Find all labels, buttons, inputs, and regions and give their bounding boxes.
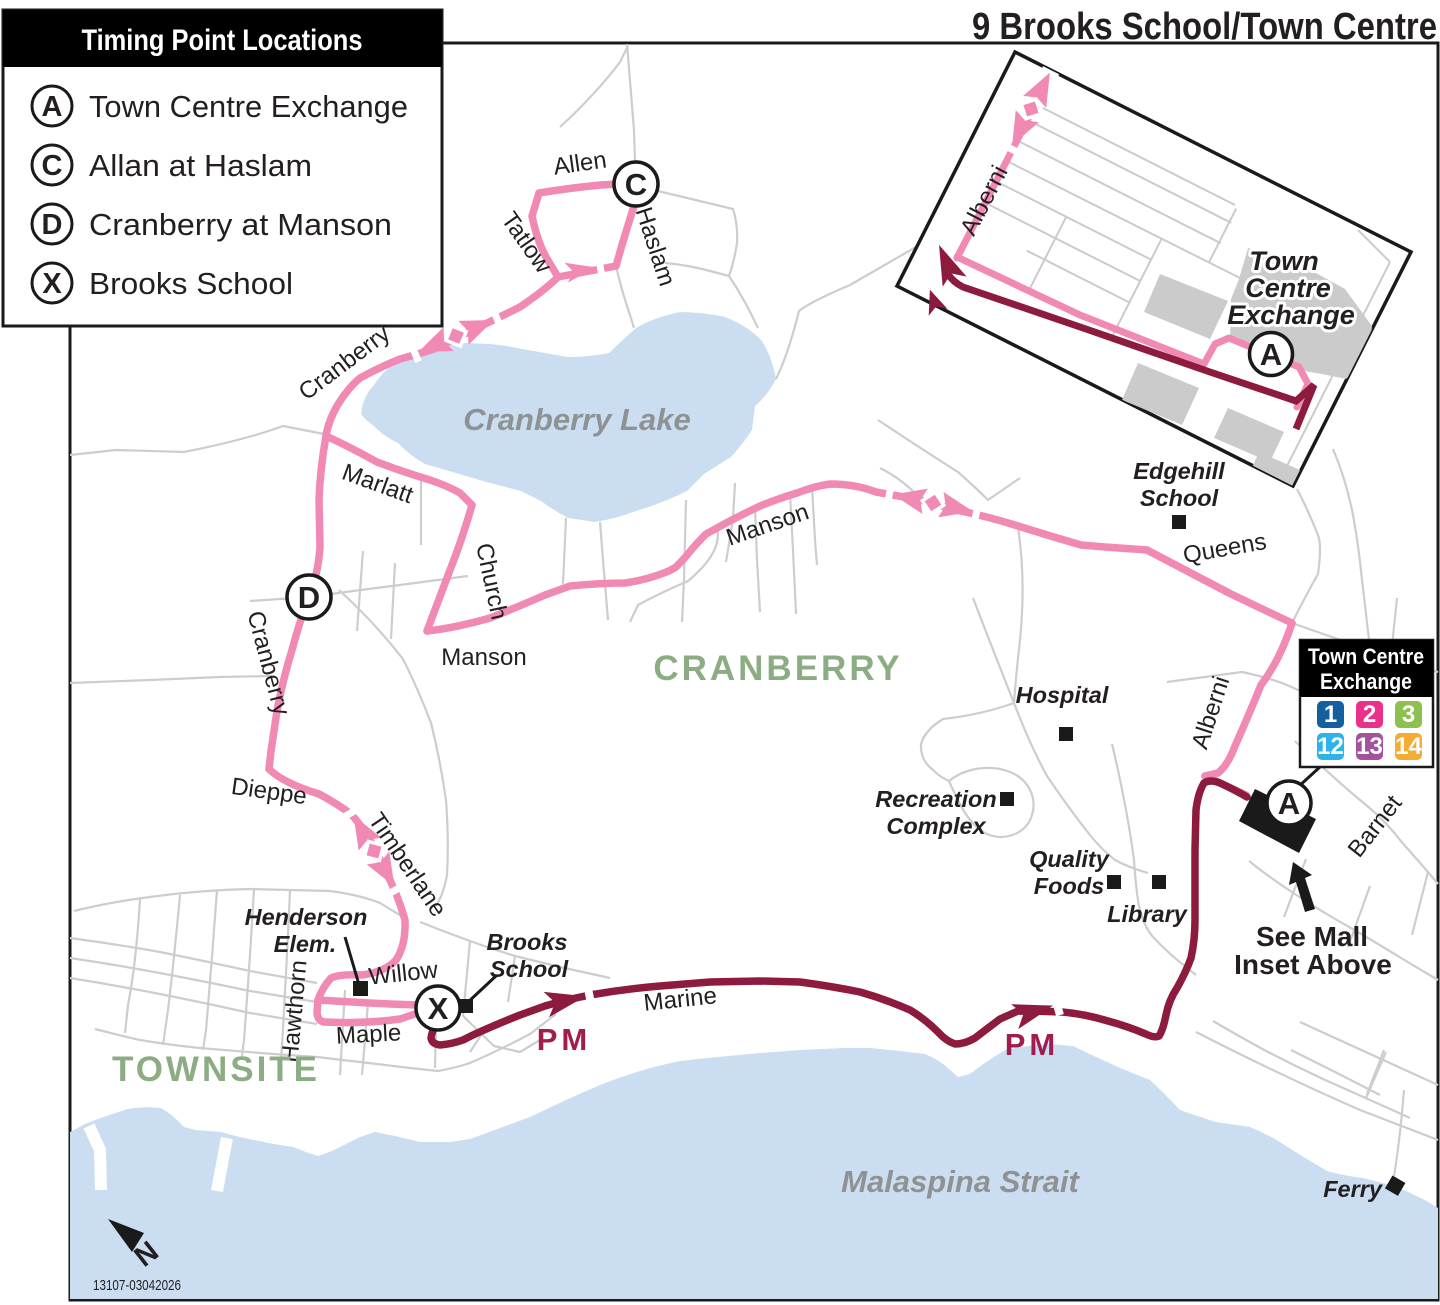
svg-text:13107-03042026: 13107-03042026 xyxy=(93,1277,181,1294)
svg-text:PM: PM xyxy=(537,1022,592,1057)
svg-text:Maple: Maple xyxy=(335,1019,402,1049)
svg-text:A: A xyxy=(42,91,63,123)
svg-text:Manson: Manson xyxy=(441,644,526,671)
svg-text:Cranberry Lake: Cranberry Lake xyxy=(463,402,690,437)
svg-text:D: D xyxy=(298,580,320,615)
svg-text:Elem.: Elem. xyxy=(274,931,337,957)
svg-text:Edgehill: Edgehill xyxy=(1133,458,1225,484)
svg-text:Hospital: Hospital xyxy=(1016,682,1109,708)
svg-text:School: School xyxy=(1140,485,1219,511)
svg-text:Quality: Quality xyxy=(1029,846,1111,872)
svg-text:Town Centre Exchange: Town Centre Exchange xyxy=(89,89,408,124)
svg-text:3: 3 xyxy=(1402,701,1415,728)
svg-text:13: 13 xyxy=(1356,733,1383,760)
svg-text:Malaspina Strait: Malaspina Strait xyxy=(841,1164,1080,1199)
svg-text:Complex: Complex xyxy=(886,813,986,839)
svg-text:Ferry: Ferry xyxy=(1323,1176,1384,1202)
svg-text:Exchange: Exchange xyxy=(1227,300,1355,330)
svg-text:Allan at Haslam: Allan at Haslam xyxy=(89,148,312,183)
svg-text:X: X xyxy=(42,268,62,300)
svg-text:14: 14 xyxy=(1395,733,1422,760)
svg-text:Brooks School: Brooks School xyxy=(89,266,293,301)
svg-text:TOWNSITE: TOWNSITE xyxy=(112,1050,320,1089)
svg-text:Centre: Centre xyxy=(1245,273,1331,303)
svg-text:C: C xyxy=(42,150,63,182)
svg-text:A: A xyxy=(1260,337,1282,372)
svg-text:Henderson: Henderson xyxy=(245,904,368,930)
svg-text:Inset Above: Inset Above xyxy=(1234,949,1392,980)
svg-text:School: School xyxy=(490,956,569,982)
svg-text:A: A xyxy=(1278,786,1300,821)
svg-text:D: D xyxy=(42,209,63,241)
svg-text:Timing Point Locations: Timing Point Locations xyxy=(82,24,363,57)
svg-text:Foods: Foods xyxy=(1034,873,1105,899)
svg-text:12: 12 xyxy=(1317,733,1344,760)
svg-text:Brooks: Brooks xyxy=(487,929,568,955)
svg-text:Town: Town xyxy=(1249,246,1318,276)
svg-text:CRANBERRY: CRANBERRY xyxy=(653,649,902,688)
svg-text:2: 2 xyxy=(1363,701,1376,728)
svg-text:9 Brooks School/Town Centre: 9 Brooks School/Town Centre xyxy=(972,6,1437,48)
svg-text:Library: Library xyxy=(1107,901,1189,927)
svg-text:Exchange: Exchange xyxy=(1320,669,1412,694)
svg-text:PM: PM xyxy=(1005,1027,1060,1062)
svg-text:C: C xyxy=(625,167,647,202)
svg-text:1: 1 xyxy=(1324,701,1337,728)
svg-text:X: X xyxy=(428,991,449,1026)
svg-text:Town Centre: Town Centre xyxy=(1308,644,1424,669)
svg-text:Cranberry at Manson: Cranberry at Manson xyxy=(89,207,392,242)
svg-text:Recreation: Recreation xyxy=(875,786,996,812)
svg-text:See Mall: See Mall xyxy=(1256,921,1368,952)
